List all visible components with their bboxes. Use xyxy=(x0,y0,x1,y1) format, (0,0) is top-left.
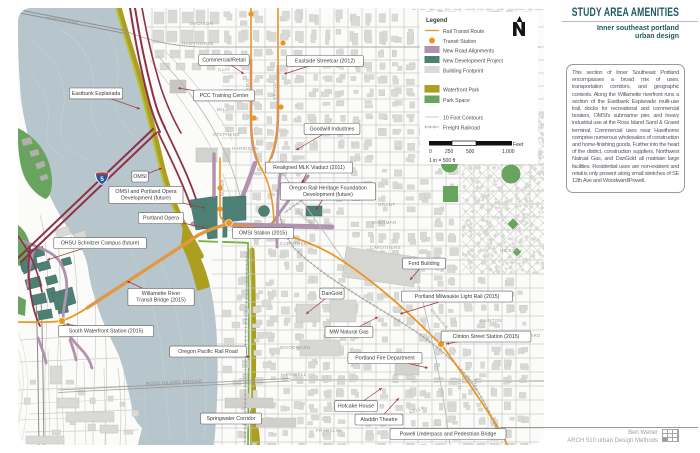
svg-text:CLAY: CLAY xyxy=(218,67,231,72)
svg-text:WOODWARD: WOODWARD xyxy=(280,345,311,350)
svg-text:Oregon Pacific Rail Road: Oregon Pacific Rail Road xyxy=(178,349,238,355)
svg-text:Transit Station: Transit Station xyxy=(443,39,476,45)
svg-text:MILL: MILL xyxy=(217,107,229,112)
svg-text:Ford Building: Ford Building xyxy=(408,261,439,267)
svg-text:GRANT: GRANT xyxy=(378,202,395,207)
svg-text:OMSI Station (2015): OMSI Station (2015) xyxy=(239,230,288,236)
svg-text:Clinton Street Station (201: Clinton Street Station (2015) xyxy=(453,334,520,340)
svg-text:SHERMAN: SHERMAN xyxy=(372,220,397,225)
svg-text:1 in = 500 ft: 1 in = 500 ft xyxy=(429,158,456,164)
svg-text:5: 5 xyxy=(100,176,104,183)
svg-text:MW Natural Gas: MW Natural Gas xyxy=(329,329,368,335)
svg-text:11TH: 11TH xyxy=(457,378,462,390)
svg-text:Goodwill Industries: Goodwill Industries xyxy=(310,126,355,132)
svg-text:Legend: Legend xyxy=(426,18,448,24)
svg-text:Powell Underpass and Pedest: Powell Underpass and Pedestrian Bridge xyxy=(400,431,497,437)
svg-text:CARUTHERS: CARUTHERS xyxy=(370,245,401,250)
svg-text:Park Space: Park Space xyxy=(443,98,470,104)
svg-text:250: 250 xyxy=(445,149,454,155)
svg-text:OMSI: OMSI xyxy=(133,174,147,180)
svg-text:Commercial/Retail: Commercial/Retail xyxy=(202,57,245,63)
svg-text:South Waterfront Station (2: South Waterfront Station (2015) xyxy=(69,328,144,334)
svg-text:MADISON: MADISON xyxy=(190,21,213,26)
svg-text:Rail Transit Route: Rail Transit Route xyxy=(443,29,484,35)
svg-text:DanGold: DanGold xyxy=(322,291,343,297)
svg-text:New Development Project: New Development Project xyxy=(443,59,504,65)
svg-text:Transit Bridge (2015): Transit Bridge (2015) xyxy=(136,298,186,304)
svg-text:Willamette River: Willamette River xyxy=(142,291,181,297)
svg-text:Portland Milwaukie Light Ra: Portland Milwaukie Light Rail (2015) xyxy=(415,294,500,300)
svg-text:0: 0 xyxy=(429,149,432,155)
svg-text:PCC Training Center: PCC Training Center xyxy=(200,93,249,99)
svg-text:Realigned MLK Viaduct (2011: Realigned MLK Viaduct (2011) xyxy=(273,165,345,171)
svg-text:STEPHENS: STEPHENS xyxy=(213,132,240,137)
svg-text:FRANKLIN: FRANKLIN xyxy=(316,428,341,433)
svg-text:GRAND: GRAND xyxy=(272,83,277,100)
svg-text:Building Footprint: Building Footprint xyxy=(443,69,484,75)
svg-text:12TH: 12TH xyxy=(473,378,478,390)
svg-text:Hotcake House: Hotcake House xyxy=(338,403,374,409)
svg-text:HICKORY: HICKORY xyxy=(500,248,523,253)
svg-text:Feet: Feet xyxy=(513,142,524,148)
svg-text:New Road Alignments: New Road Alignments xyxy=(443,49,494,55)
svg-text:OHSU Schnitzer Campus (futu: OHSU Schnitzer Campus (future) xyxy=(61,240,140,246)
svg-text:Development (future): Development (future) xyxy=(121,196,171,202)
svg-text:500: 500 xyxy=(466,149,475,155)
svg-text:1,000: 1,000 xyxy=(502,149,515,155)
svg-text:CLINTON: CLINTON xyxy=(480,318,502,323)
svg-text:OMSI and Portland Opera: OMSI and Portland Opera xyxy=(115,189,176,195)
svg-text:Eastbank Esplanada: Eastbank Esplanada xyxy=(72,91,121,97)
svg-text:Waterfront Park: Waterfront Park xyxy=(443,88,480,94)
svg-text:Portland Fire Department: Portland Fire Department xyxy=(355,355,415,361)
svg-text:10 Foot Contours: 10 Foot Contours xyxy=(443,116,483,122)
svg-text:Eastside Streetcar (2012): Eastside Streetcar (2012) xyxy=(295,58,355,64)
svg-text:WATER: WATER xyxy=(220,179,225,196)
svg-text:Aladdin Theatre: Aladdin Theatre xyxy=(360,417,397,423)
svg-text:Oregon Rail Heritage Founda: Oregon Rail Heritage Foundation xyxy=(289,186,367,192)
svg-text:HAWTHORNE: HAWTHORNE xyxy=(182,41,214,46)
svg-text:Development (future): Development (future) xyxy=(303,192,353,198)
svg-text:Springwater Corridor: Springwater Corridor xyxy=(207,416,256,422)
svg-text:CARUTHERS: CARUTHERS xyxy=(280,241,311,246)
svg-text:POWELL: POWELL xyxy=(286,372,307,377)
svg-text:Portland Opera: Portland Opera xyxy=(143,215,179,221)
svg-text:Freight Railroad: Freight Railroad xyxy=(443,126,480,132)
svg-text:HARRISON: HARRISON xyxy=(232,146,258,151)
